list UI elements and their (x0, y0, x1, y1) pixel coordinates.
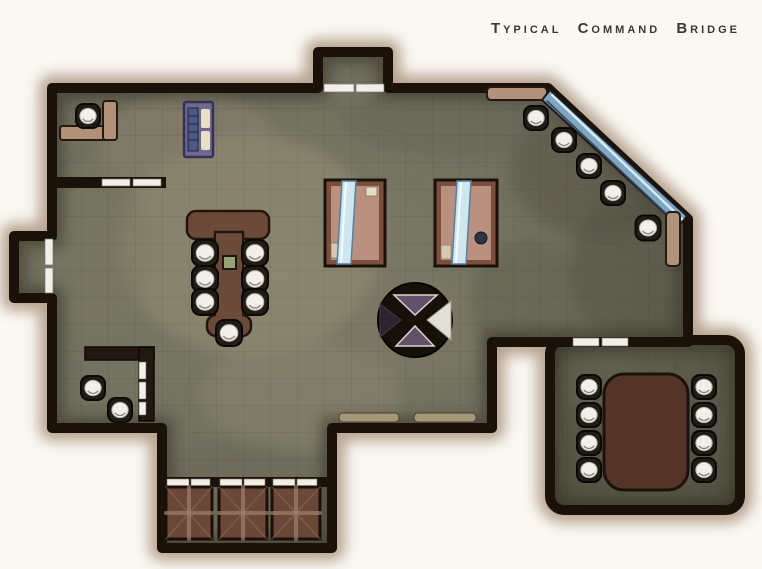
chair (76, 104, 100, 128)
chair (692, 458, 716, 482)
chair (552, 128, 576, 152)
wall-console (184, 102, 213, 157)
viewport-counter-top (487, 87, 547, 100)
chair (242, 289, 268, 315)
chair (692, 431, 716, 455)
turbolift-1 (166, 487, 212, 539)
chair (577, 431, 601, 455)
chair (692, 375, 716, 399)
annex-table (604, 374, 688, 490)
turbolift-3 (272, 487, 320, 539)
command-bridge-floorplan (0, 0, 762, 569)
duty-station-port (325, 180, 385, 266)
holo-table (378, 283, 452, 357)
chair (601, 181, 625, 205)
chair (192, 289, 218, 315)
page-title: Typical Command Bridge (491, 20, 740, 37)
bridge-map (14, 52, 740, 552)
scanned-page: Typical Command Bridge (0, 0, 762, 569)
chair (577, 375, 601, 399)
chair (524, 106, 548, 130)
duty-station-starboard (435, 180, 497, 266)
chair (192, 240, 218, 266)
chair (577, 154, 601, 178)
chair (692, 403, 716, 427)
top-alcove-door (324, 84, 384, 92)
chair (636, 216, 661, 241)
viewport-counter-side (666, 212, 680, 266)
chair (216, 320, 242, 346)
chair (242, 240, 268, 266)
chair (81, 376, 105, 400)
chair (577, 403, 601, 427)
chair (577, 458, 601, 482)
chair (108, 398, 132, 422)
turbolift-2 (219, 487, 267, 539)
